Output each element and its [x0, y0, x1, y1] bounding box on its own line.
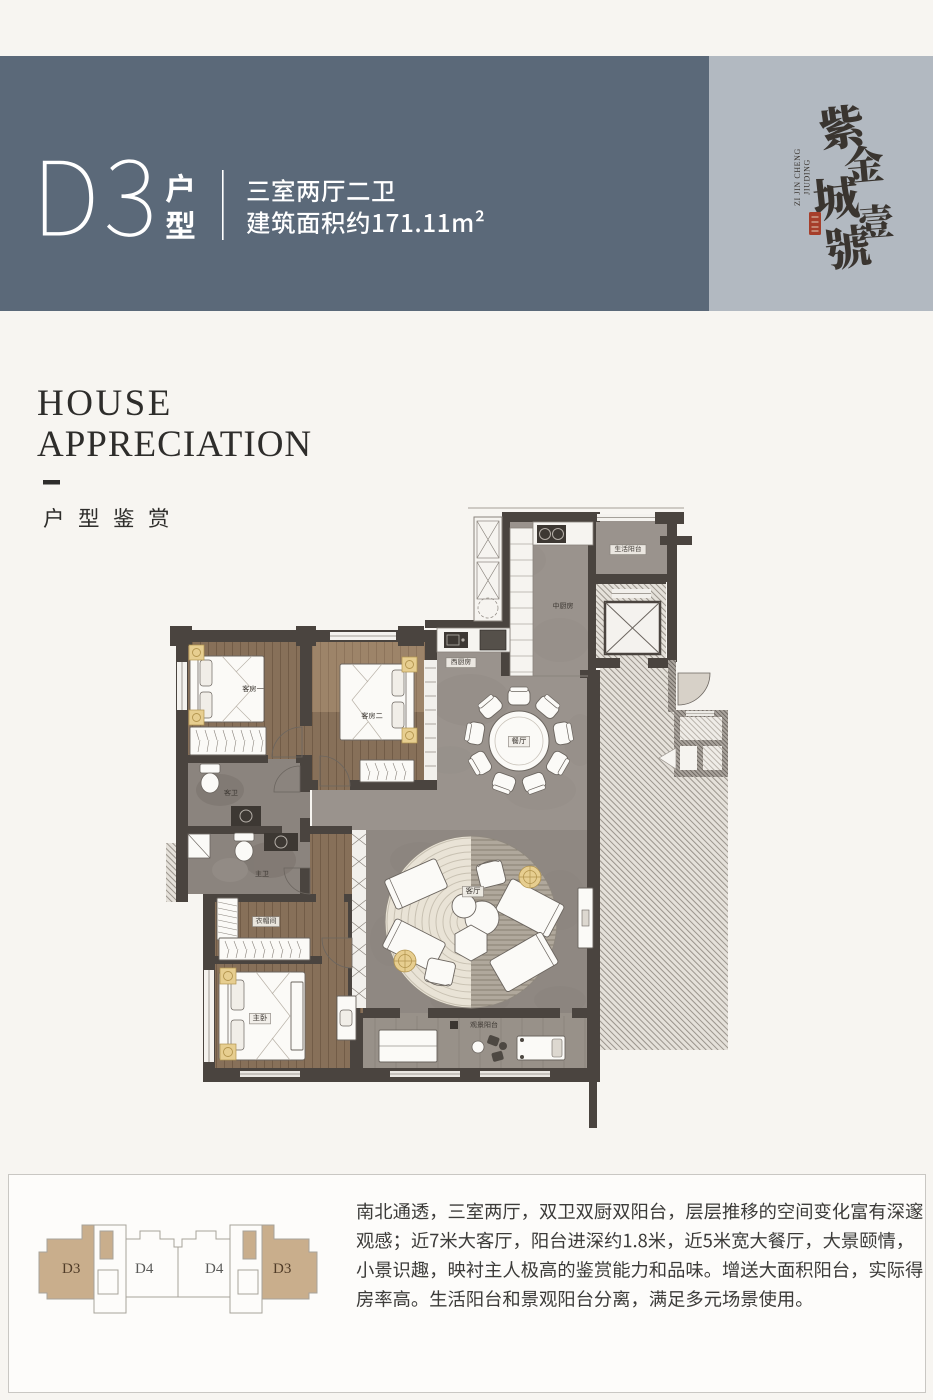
svg-text:D3: D3 [273, 1261, 291, 1277]
svg-text:ZI JIN CHENG: ZI JIN CHENG [793, 148, 802, 206]
svg-text:D4: D4 [205, 1261, 224, 1277]
svg-text:APPRECIATION: APPRECIATION [37, 424, 312, 465]
svg-text:D3: D3 [62, 1261, 80, 1277]
svg-text:D4: D4 [135, 1261, 154, 1277]
svg-text:JIUDING: JIUDING [803, 159, 812, 195]
svg-text:HOUSE: HOUSE [37, 383, 173, 424]
